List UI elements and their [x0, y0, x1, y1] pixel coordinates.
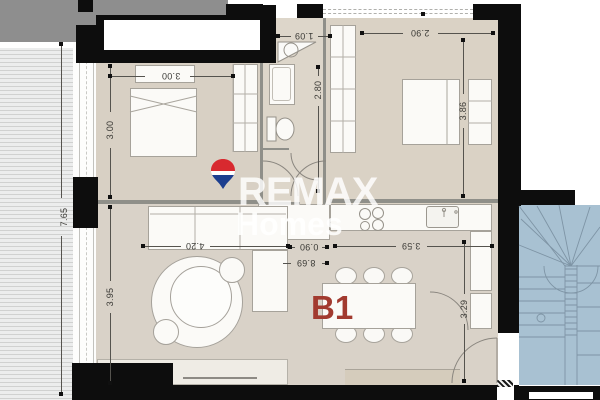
- dim-dot: [325, 261, 329, 265]
- shower-tray-inner: [272, 67, 291, 101]
- dim-dot: [491, 31, 495, 35]
- kitchen-tall-cabinets: [470, 231, 492, 291]
- dim-label-facade-depth: 7.65: [59, 208, 69, 227]
- dim-dot: [108, 74, 112, 78]
- wall-bottom-strip: [173, 385, 497, 400]
- roof-dashed-line: [323, 13, 473, 14]
- dim-line: [362, 33, 403, 34]
- bed-bedroom2: [402, 79, 460, 145]
- stairwell: [519, 205, 600, 385]
- dim-line: [464, 242, 465, 294]
- dim-label-bedroom1-width: 3.00: [162, 71, 181, 81]
- wall-top-left-stub: [78, 0, 93, 12]
- dim-label-bedroom1-depth: 3.00: [105, 121, 115, 140]
- roof-window: [104, 20, 264, 50]
- dim-dot: [461, 194, 465, 198]
- dim-dot: [141, 244, 145, 248]
- low-sideboard: [345, 369, 460, 385]
- dim-label-pass-width: 0.90: [300, 242, 319, 252]
- partition-bath-hall: [263, 148, 289, 150]
- dim-dot: [462, 379, 466, 383]
- dim-line: [61, 236, 62, 394]
- wall-bottom-thick: [72, 363, 173, 400]
- dim-dot: [288, 245, 292, 249]
- dim-label-entry-depth: 3.29: [459, 300, 469, 319]
- dim-line: [190, 76, 233, 77]
- dim-line: [110, 66, 111, 112]
- entry-threshold-hatch: [497, 380, 513, 387]
- neighbor-door-slot: [529, 392, 593, 399]
- dim-line: [61, 44, 62, 198]
- dim-dot: [108, 195, 112, 199]
- dim-label-bedroom2-depth: 3.86: [458, 102, 468, 121]
- dim-dot: [108, 381, 112, 385]
- unit-label: B1: [311, 289, 353, 327]
- wall-right-lower: [498, 205, 519, 333]
- dim-dot: [461, 38, 465, 42]
- dim-line: [464, 324, 465, 381]
- dim-line: [427, 246, 492, 247]
- dim-line: [110, 313, 111, 383]
- tv-set: [183, 377, 257, 379]
- kitchen-sink: [426, 206, 459, 228]
- dim-label-kitchen-width: 3.59: [402, 241, 421, 251]
- round-chair-footstool: [153, 319, 179, 345]
- wall-stair-arm: [519, 190, 575, 205]
- dim-dot: [360, 31, 364, 35]
- dim-label-total-width: 8.69: [297, 258, 316, 268]
- dim-label-bedroom2-width: 2.90: [411, 28, 430, 38]
- dim-line: [210, 246, 288, 247]
- dim-dot: [333, 244, 337, 248]
- wall-top-center-bar: [297, 4, 323, 18]
- watermark-sub-brand: Homes: [236, 206, 343, 243]
- dim-line: [438, 33, 493, 34]
- dim-line: [283, 263, 291, 264]
- wall-right-upper: [498, 16, 521, 206]
- dim-line: [463, 40, 464, 94]
- dim-dot: [462, 240, 466, 244]
- bed-bedroom1: [130, 88, 197, 157]
- dim-dot: [276, 34, 280, 38]
- dim-dot: [421, 12, 425, 16]
- dim-label-hall-depth: 2.80: [313, 81, 323, 100]
- roof-dashed-line: [323, 9, 473, 10]
- dim-line: [110, 148, 111, 197]
- dim-line: [110, 76, 145, 77]
- dim-dot: [108, 205, 112, 209]
- dim-dot: [325, 245, 329, 249]
- floor-plan: 3.00 1.09 2.90 3.00 2.80 3.86 7.65 4.20 …: [0, 0, 600, 400]
- wall-top-step: [226, 4, 263, 16]
- dim-label-living-width: 4.20: [186, 241, 205, 251]
- wall-glazing-pier-top: [76, 25, 96, 63]
- balcony-edge: [0, 42, 75, 48]
- dim-line: [463, 128, 464, 196]
- bedside-unit-bedroom2: [468, 79, 492, 145]
- entry-closet: [470, 293, 492, 329]
- dim-dot: [59, 392, 63, 396]
- remax-balloon-icon: [210, 158, 236, 190]
- dim-dot: [490, 244, 494, 248]
- sofa-chaise: [252, 250, 288, 312]
- dim-dot: [328, 34, 332, 38]
- round-chair-cushion: [219, 257, 245, 283]
- dim-line: [110, 207, 111, 281]
- dim-line: [143, 246, 181, 247]
- wall-bath-left-upper: [260, 5, 276, 63]
- entry-door-gap: [497, 385, 514, 400]
- wall-glazing-pier-mid: [73, 177, 98, 228]
- dim-label-bath-width: 1.09: [295, 31, 314, 41]
- dim-dot: [59, 42, 63, 46]
- wardrobe-bedroom2: [330, 25, 356, 153]
- dim-line: [335, 246, 396, 247]
- wardrobe-bedroom1: [233, 64, 258, 152]
- dim-label-living-depth: 3.95: [105, 288, 115, 307]
- dim-dot: [231, 74, 235, 78]
- dim-dot: [316, 65, 320, 69]
- dim-dot: [108, 64, 112, 68]
